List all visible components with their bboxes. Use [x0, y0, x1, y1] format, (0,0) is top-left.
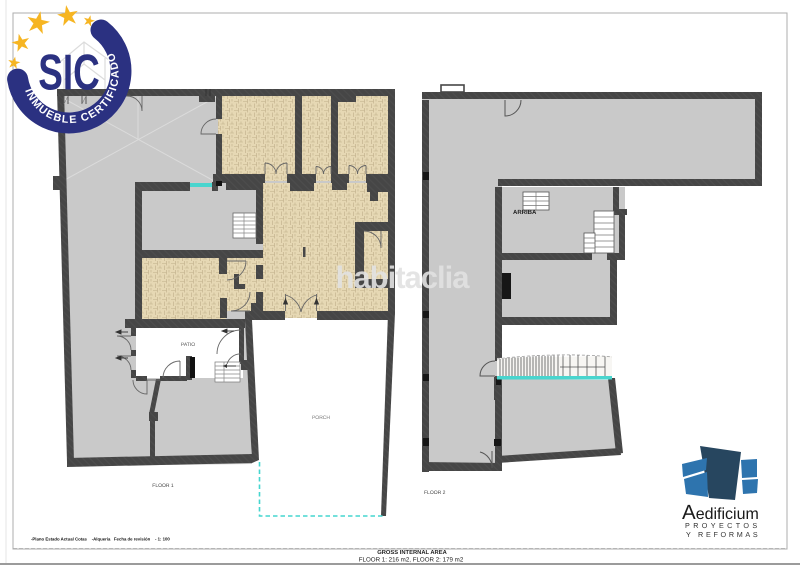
svg-text:PORCH: PORCH: [312, 415, 330, 421]
svg-text:SIC: SIC: [38, 44, 99, 101]
svg-text:PATIO: PATIO: [181, 342, 195, 348]
svg-text:-Plano Estado Actual Cotas: -Plano Estado Actual Cotas -Alqueria Fec…: [31, 537, 170, 542]
svg-text:ARRIBA: ARRIBA: [513, 209, 537, 216]
svg-text:habitaclia: habitaclia: [336, 260, 471, 295]
svg-text:FLOOR 1: FLOOR 1: [152, 483, 174, 489]
svg-text:FLOOR 1: 216 m2, FLOOR 2: 179: FLOOR 1: 216 m2, FLOOR 2: 179 m2: [359, 557, 464, 564]
svg-text:Y REFORMAS: Y REFORMAS: [686, 530, 760, 539]
svg-text:FLOOR 2: FLOOR 2: [424, 490, 446, 496]
svg-text:PROYECTOS: PROYECTOS: [685, 521, 761, 530]
svg-text:GROSS INTERNAL AREA: GROSS INTERNAL AREA: [377, 549, 447, 556]
